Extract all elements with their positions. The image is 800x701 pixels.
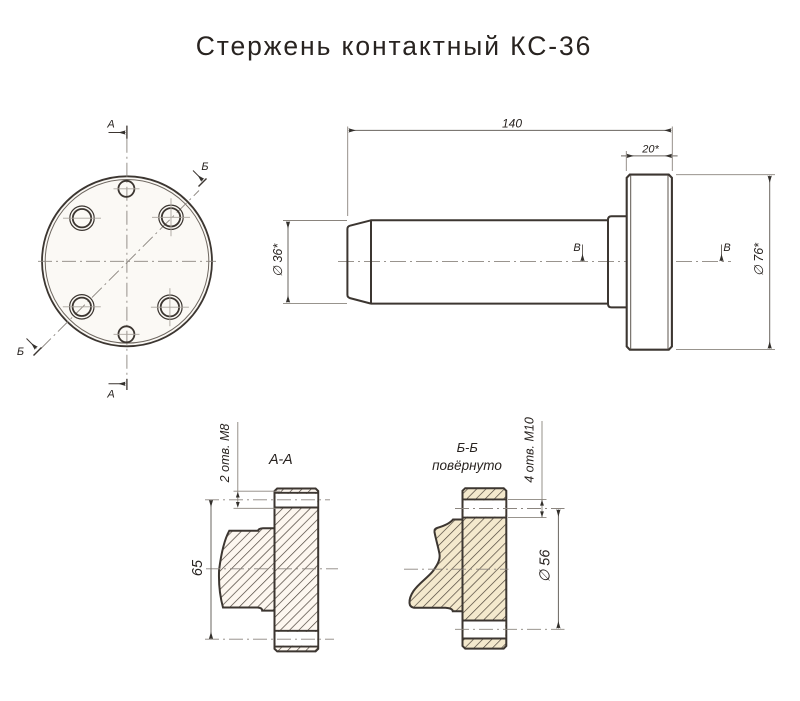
svg-text:В: В xyxy=(573,242,580,254)
svg-text:∅ 36*: ∅ 36* xyxy=(271,243,285,277)
svg-text:2 отв. М8: 2 отв. М8 xyxy=(218,424,232,484)
svg-text:Б-Б: Б-Б xyxy=(457,440,479,455)
svg-text:А: А xyxy=(106,119,114,131)
svg-text:Б: Б xyxy=(201,161,208,173)
svg-text:65: 65 xyxy=(190,559,206,576)
svg-text:Стержень контактный КС-36: Стержень контактный КС-36 xyxy=(196,31,593,61)
svg-text:А-А: А-А xyxy=(268,452,292,468)
svg-text:20*: 20* xyxy=(641,144,659,156)
svg-text:А: А xyxy=(106,389,114,401)
svg-text:повёрнуто: повёрнуто xyxy=(432,458,502,473)
svg-text:∅ 56: ∅ 56 xyxy=(537,549,553,583)
svg-text:140: 140 xyxy=(502,117,522,131)
svg-text:∅ 76*: ∅ 76* xyxy=(752,242,766,276)
svg-text:Б: Б xyxy=(17,346,24,358)
svg-text:В: В xyxy=(723,242,730,254)
svg-text:4 отв. М10: 4 отв. М10 xyxy=(523,417,537,483)
